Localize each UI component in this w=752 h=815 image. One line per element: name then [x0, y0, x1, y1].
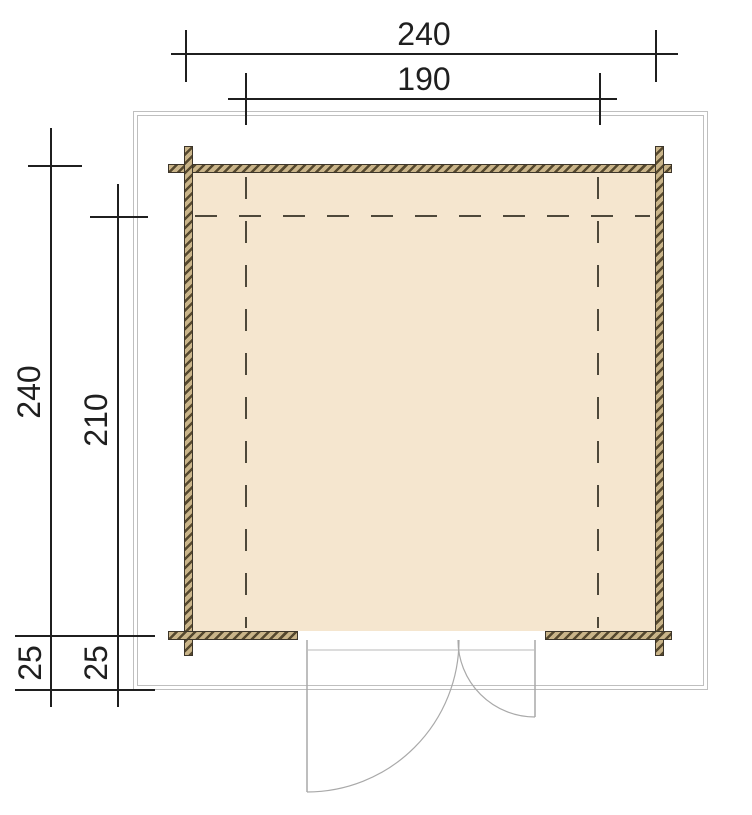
dim-label-left-offset-inner: 25: [80, 613, 112, 713]
dim-label-left-outer: 240: [13, 342, 45, 442]
dim-line-left-outer: [50, 128, 52, 707]
dim-tick-left-outer-top: [28, 165, 82, 167]
door-swing-arc-left: [307, 640, 459, 792]
dim-label-top-outer: 240: [374, 18, 474, 50]
dim-label-top-inner: 190: [374, 63, 474, 95]
dim-line-top-inner: [228, 98, 617, 100]
dim-label-left-inner: 210: [80, 370, 112, 470]
dim-tick-top-outer-left: [185, 30, 187, 82]
floor-plan-drawing: 240 190 240 210 25 25: [0, 0, 752, 815]
dim-tick-top-inner-left: [245, 73, 247, 125]
door-swing-arc-right: [458, 640, 535, 717]
dim-tick-top-outer-right: [655, 30, 657, 82]
dim-tick-top-inner-right: [599, 73, 601, 125]
dim-line-left-inner: [117, 184, 119, 707]
dim-line-top-outer: [171, 53, 678, 55]
dim-label-left-offset-outer: 25: [14, 613, 46, 713]
dim-tick-left-inner-top: [90, 216, 148, 218]
